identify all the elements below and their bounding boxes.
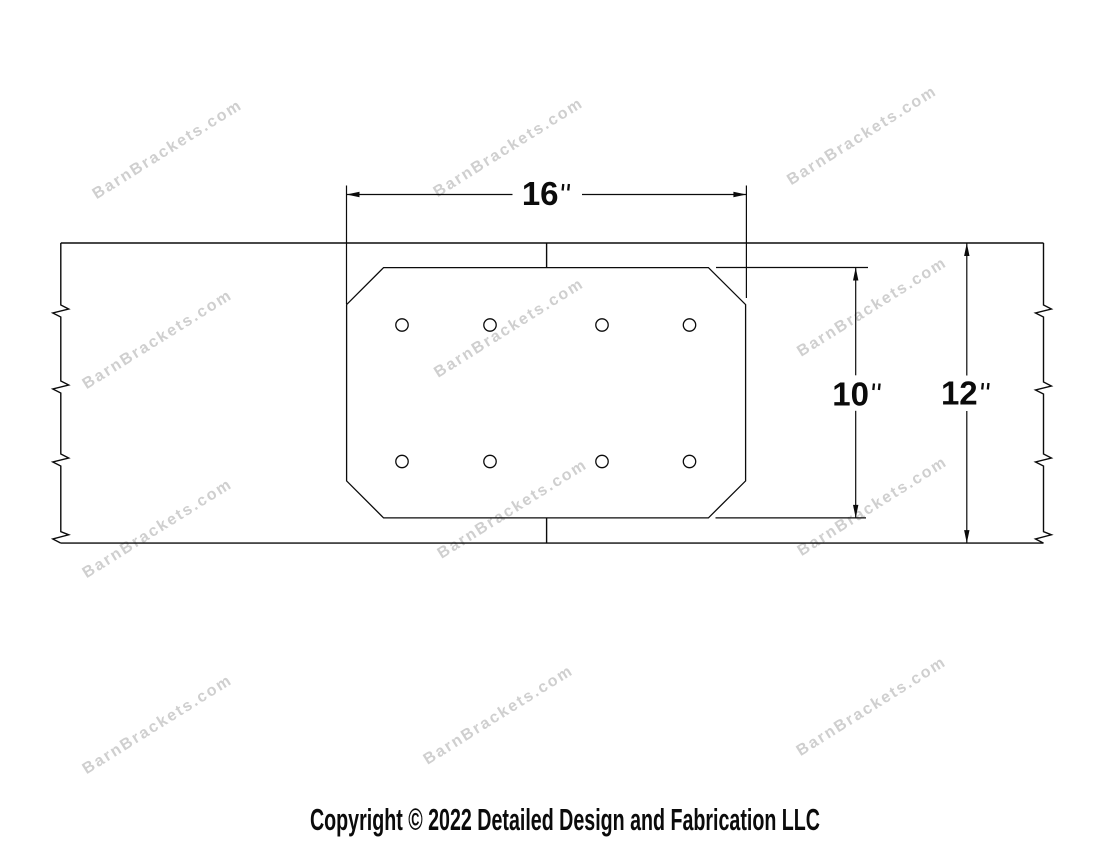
- svg-text:Copyright © 2022 Detailed Desi: Copyright © 2022 Detailed Design and Fab…: [310, 802, 820, 837]
- svg-text:12: 12: [941, 375, 978, 412]
- svg-text:10: 10: [832, 375, 869, 412]
- svg-text:16: 16: [522, 175, 559, 212]
